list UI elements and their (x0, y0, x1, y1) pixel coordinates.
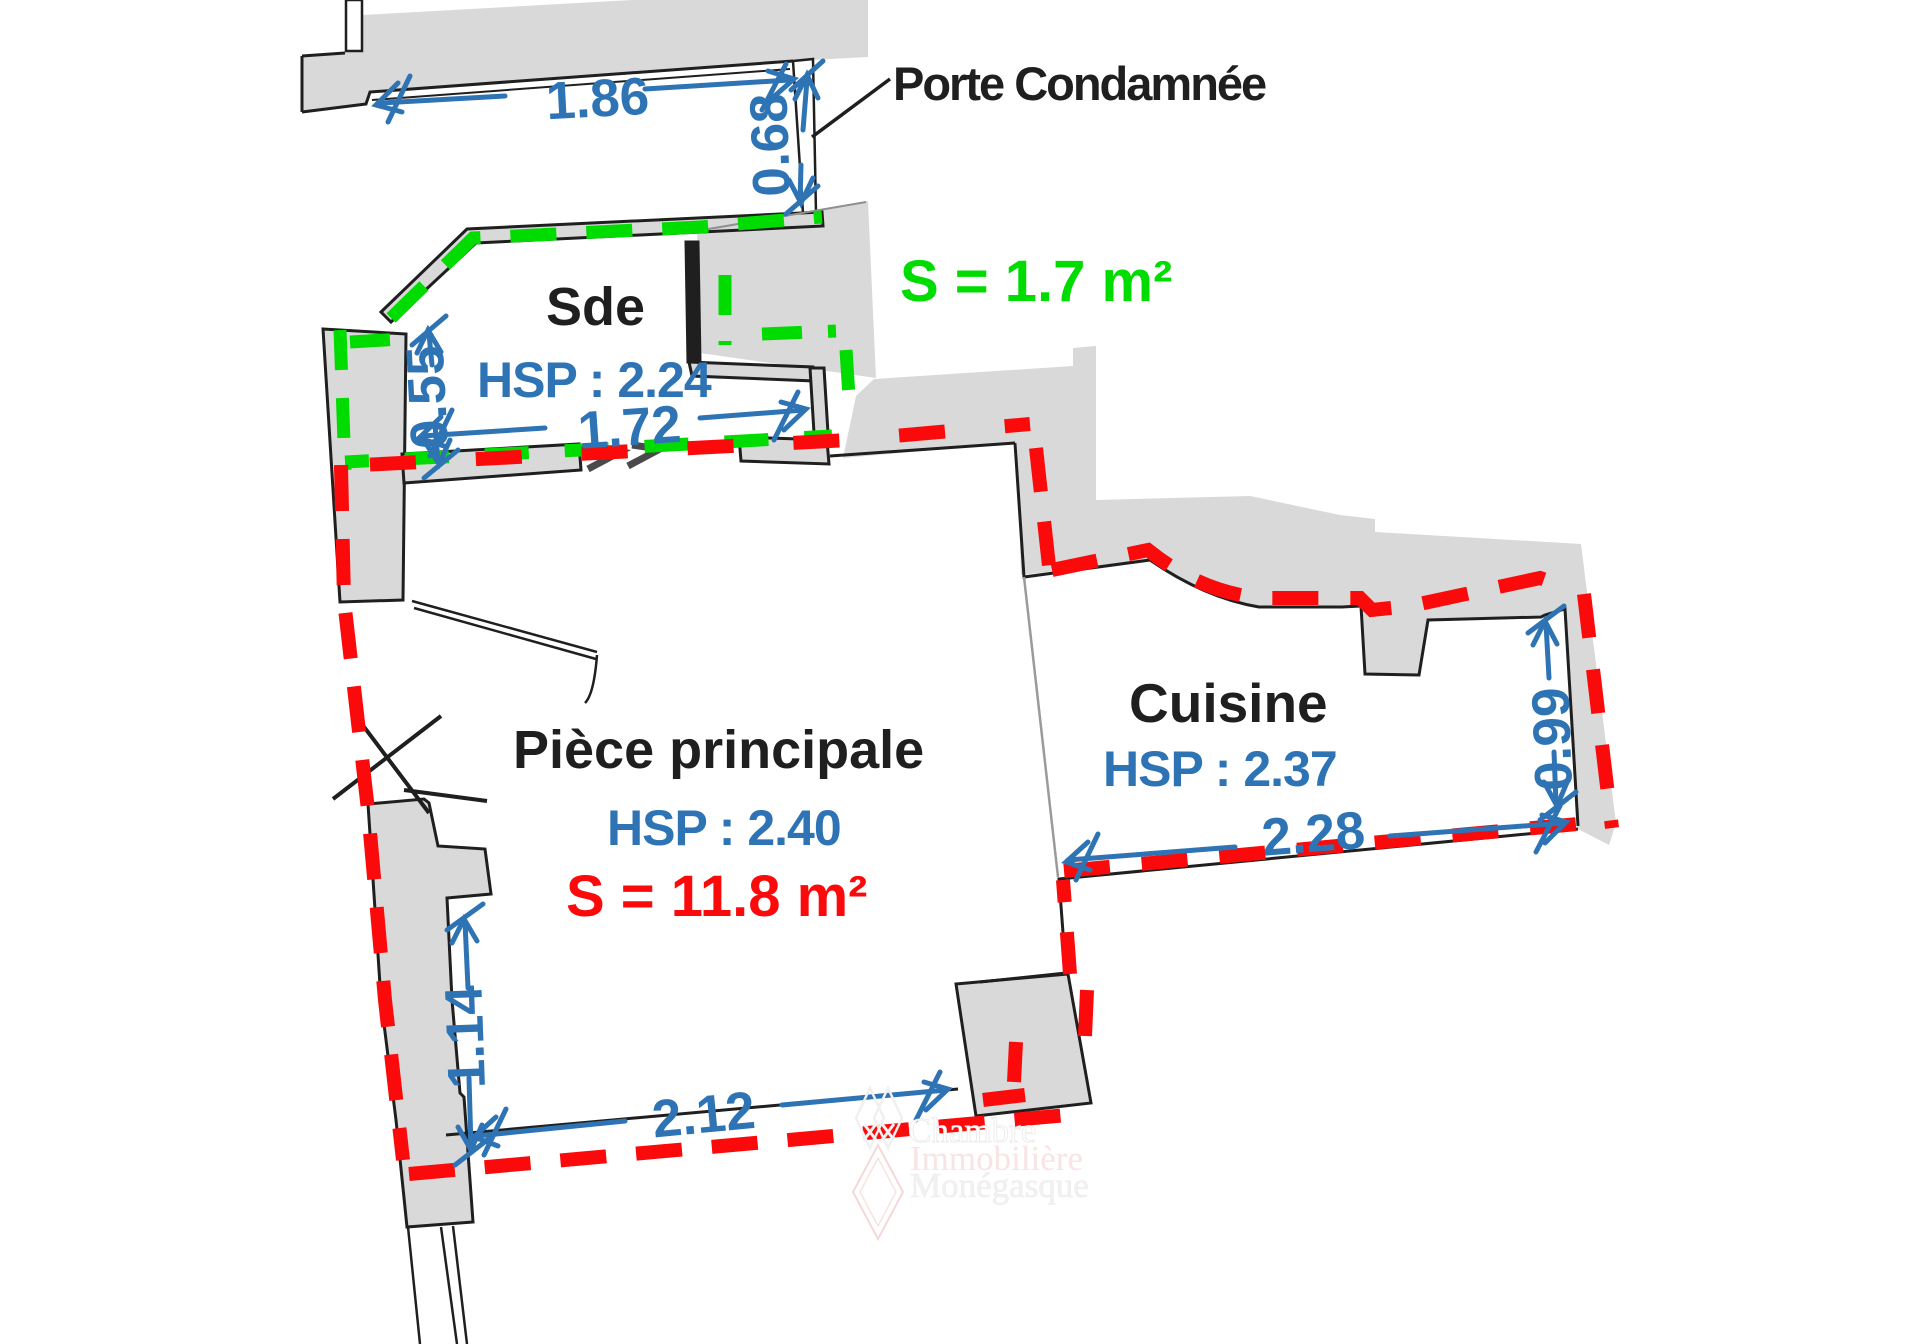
svg-text:2.12: 2.12 (649, 1081, 757, 1150)
svg-text:2.28: 2.28 (1260, 801, 1367, 868)
svg-text:0.55: 0.55 (396, 344, 460, 450)
svg-text:Sde: Sde (546, 277, 645, 337)
svg-text:1.14: 1.14 (434, 984, 497, 1090)
svg-text:1.86: 1.86 (545, 67, 651, 131)
svg-text:Porte Condamnée: Porte Condamnée (893, 57, 1266, 110)
svg-text:S = 1.7 m²: S = 1.7 m² (900, 249, 1172, 314)
svg-text:Cuisine: Cuisine (1129, 672, 1328, 734)
svg-text:0.99: 0.99 (1521, 686, 1584, 791)
svg-text:0.68: 0.68 (739, 92, 802, 197)
svg-text:HSP : 2.37: HSP : 2.37 (1103, 741, 1337, 797)
svg-text:HSP : 2.40: HSP : 2.40 (607, 800, 841, 856)
svg-text:Monégasque: Monégasque (910, 1166, 1089, 1205)
svg-text:Pièce principale: Pièce principale (513, 720, 924, 780)
svg-text:1.72: 1.72 (576, 395, 683, 461)
svg-text:S = 11.8 m²: S = 11.8 m² (566, 864, 867, 929)
